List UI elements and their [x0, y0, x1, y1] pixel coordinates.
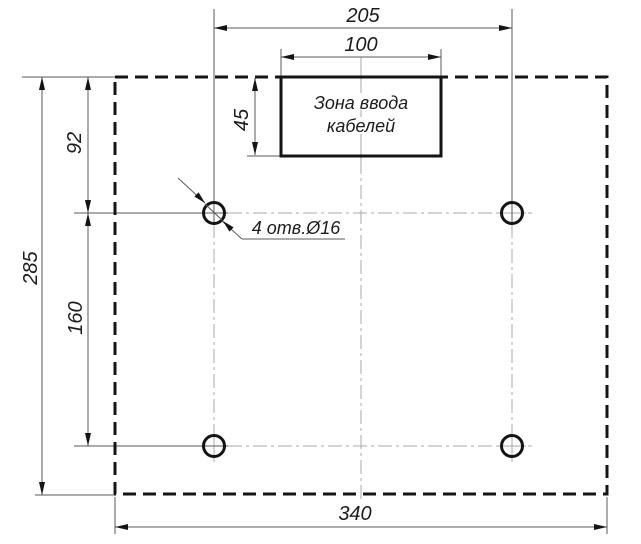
- arrowhead: [499, 25, 512, 31]
- dimension-labels: 205 100 45 92 160 285 340: [20, 5, 381, 525]
- arrowhead: [85, 433, 91, 446]
- dim-label-205: 205: [345, 5, 380, 27]
- dim-label-45: 45: [231, 108, 253, 131]
- dim-label-100: 100: [344, 34, 377, 56]
- arrowhead: [594, 524, 607, 530]
- dim-label-340: 340: [338, 503, 371, 525]
- mounting-holes: [204, 203, 523, 457]
- arrowhead: [214, 25, 227, 31]
- arrowhead: [39, 77, 45, 90]
- arrowhead: [85, 77, 91, 90]
- technical-drawing-canvas: Зона ввода кабелей 4 отв.Ø16 205 100 45 …: [0, 0, 641, 544]
- arrowhead: [85, 200, 91, 213]
- arrowhead: [252, 78, 258, 91]
- cable-zone-label-line2: кабелей: [327, 116, 395, 136]
- dim-label-285: 285: [20, 250, 42, 285]
- dim-label-92: 92: [64, 132, 86, 154]
- arrowhead: [252, 142, 258, 155]
- arrowhead: [115, 524, 128, 530]
- arrowhead: [85, 213, 91, 226]
- cable-zone-label-line1: Зона ввода: [314, 93, 408, 113]
- arrowhead: [281, 54, 294, 60]
- dim-label-160: 160: [65, 301, 87, 334]
- arrowhead: [39, 482, 45, 495]
- arrowhead: [428, 54, 441, 60]
- holes-callout-label: 4 отв.Ø16: [252, 218, 341, 238]
- technical-drawing-page: Зона ввода кабелей 4 отв.Ø16 205 100 45 …: [0, 0, 641, 544]
